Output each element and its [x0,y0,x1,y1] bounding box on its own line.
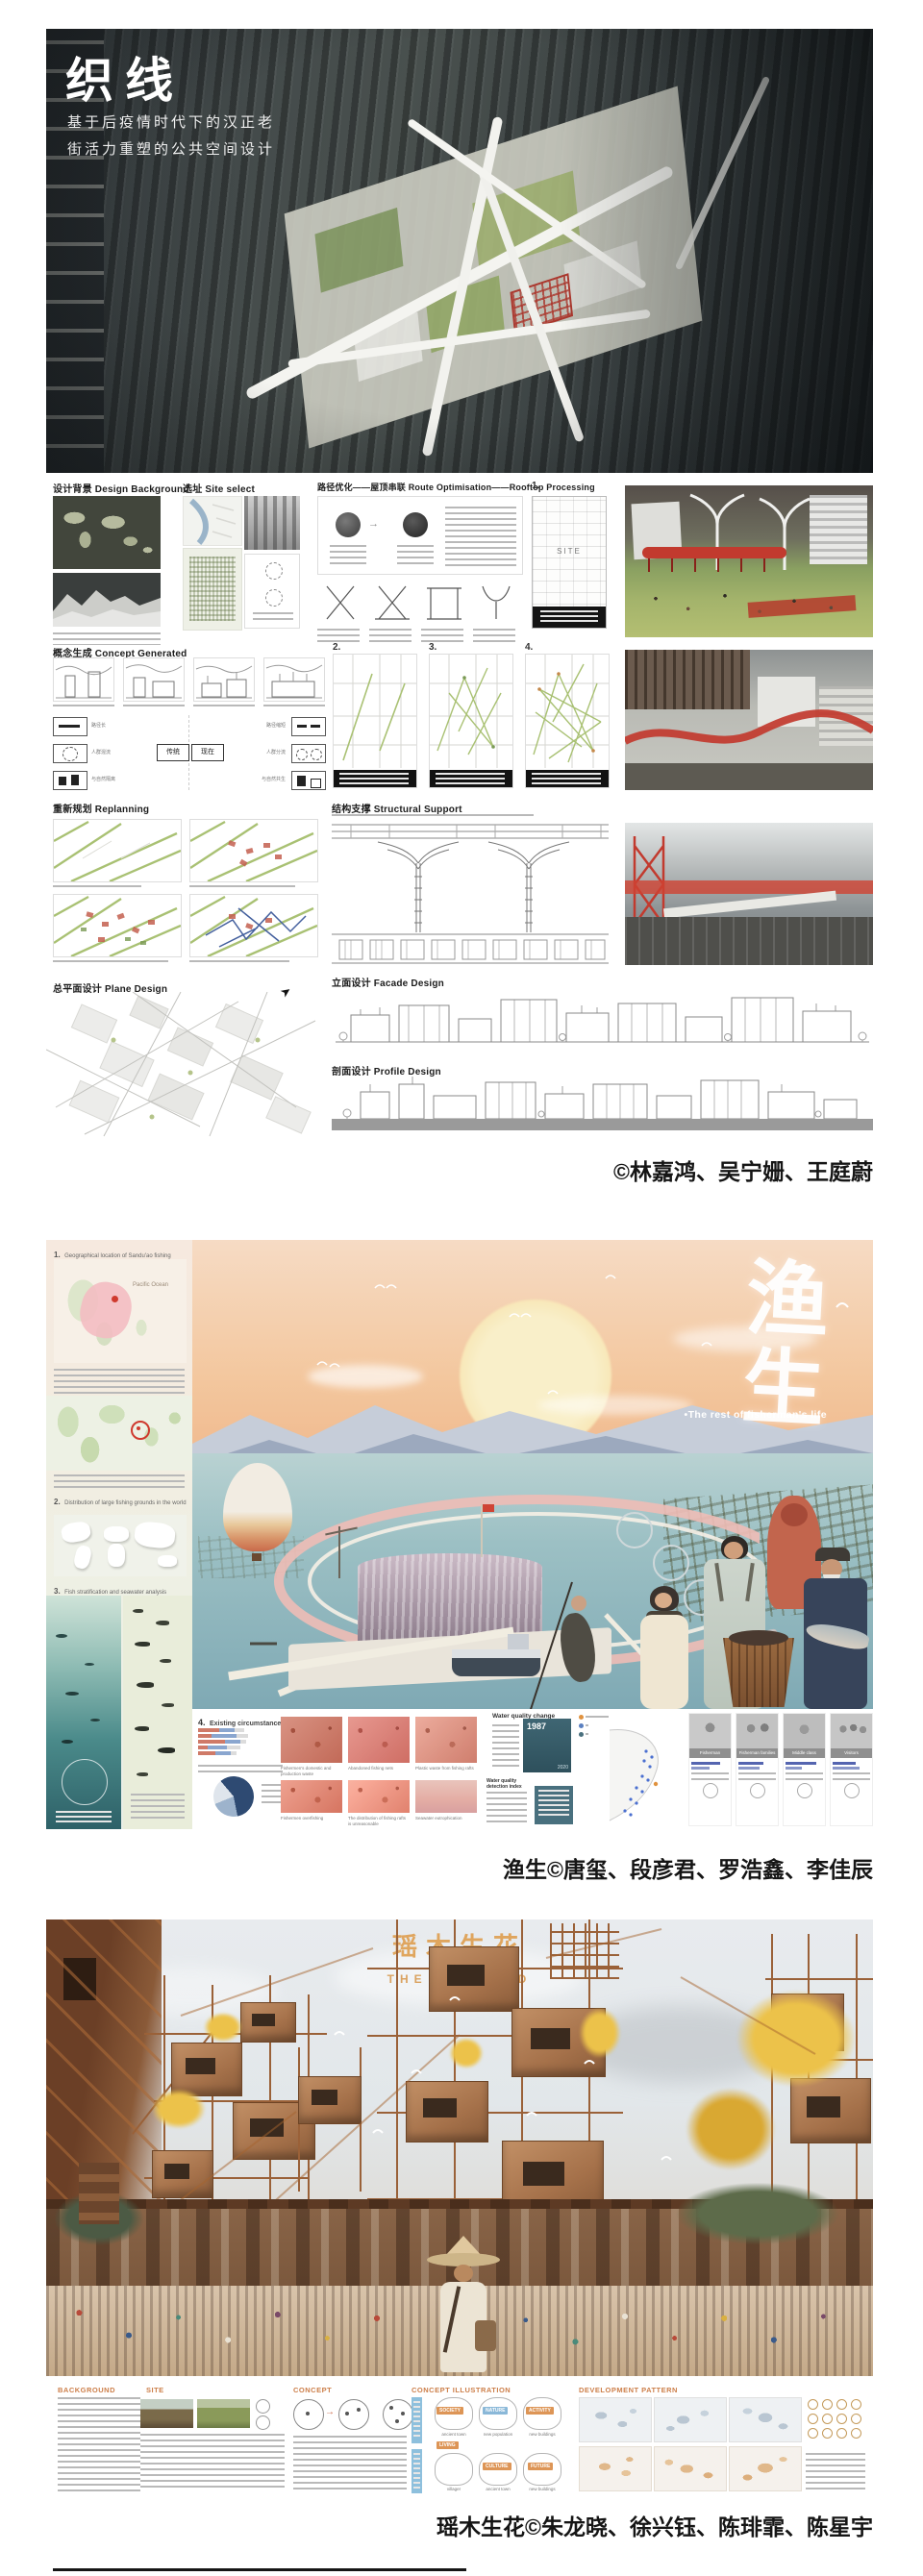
route-node-icon [403,512,428,537]
poster-title: 织线 [65,42,185,111]
concept-tag: LIVING [437,2441,459,2449]
replanning-map-3 [53,894,182,957]
panel-number-4: 4. [525,642,533,653]
issue-photo [348,1780,410,1813]
section-replanning: 重新规划 Replanning [53,801,149,815]
issue-photo [415,1780,477,1813]
conical-hat-woman [419,2236,508,2376]
background-text [58,2397,140,2491]
world-fishing-map [54,1515,187,1576]
sidebar-num: 4. [198,1718,206,1727]
tree-diagram [435,2453,473,2486]
profile-section-drawing [332,1075,873,1132]
elevation-thumb [123,657,185,702]
tree-caption: villager [435,2487,473,2492]
poster-subtitle-line1: 基于后疫情时代下的汉正老 [67,111,275,132]
year-end: 2020 [558,1765,568,1771]
tree-caption: ancient town [435,2432,473,2438]
credit-caption-newbud: 瑶木生花©朱龙晓、徐兴钰、陈琲霏、陈星宇 [437,2509,873,2541]
render-canopy-plaza [625,485,873,637]
strip-header-concept: CONCEPT [293,2386,332,2394]
credit-caption-yusheng: 渔生©唐玺、段彦君、罗浩鑫、李佳辰 [503,1851,873,1884]
blue-axis-bar [412,2449,422,2493]
pattern-map-blue [654,2397,727,2442]
bracing-diagrams [317,581,523,625]
site-photo [244,496,300,550]
bottom-rule [53,2568,466,2571]
pattern-map-orange [654,2446,727,2491]
girl-figure [633,1586,696,1709]
route-optimization-diagram: → [317,496,523,575]
site-plan-panel-1: SITE [532,496,607,629]
year-start: 1987 [527,1721,546,1731]
concept-tag: ACTIVITY [526,2407,554,2415]
site-label: SITE [533,547,606,556]
tradition-box: 传统 [157,744,189,761]
pattern-legend-circles [806,2397,865,2449]
concept-tag: FUTURE [528,2463,553,2470]
world-map-dark [53,496,161,569]
water-index-title: Water quality detection index [486,1778,536,1790]
hero-render-image: 织线 基于后疫情时代下的汉正老 街活力重塑的公共空间设计 [46,29,873,473]
panel-number-1: 1. [532,481,539,491]
tradition-vs-present-diagram: 路径长 人群混流 与自然隔离 传统 现在 路径缩短 人群分流 与自然共生 [53,715,325,790]
persona-label: Fisherman families [736,1748,778,1758]
arrow-icon: → [368,518,379,530]
poster-title-vertical: 渔生 [709,1252,842,1527]
text-line-placeholder [53,632,161,645]
issue-caption: The distribution of fishing rafts is unr… [348,1816,410,1827]
persona-card: Middle class [783,1713,826,1826]
present-box: 现在 [191,744,224,761]
site-diagram [244,554,300,629]
structural-support-drawing [332,819,609,967]
coastal-islands-map [46,1396,192,1471]
site-dot [112,1296,118,1302]
section-design-background: 设计背景 Design Background [53,481,189,495]
diver-figure [544,1582,606,1709]
stacked-bar-chart [198,1728,287,1761]
plane-axon-drawing [46,992,327,1138]
fish-species-column [123,1596,192,1829]
pagoda [79,2163,119,2224]
strip-header-development-pattern: DEVELOPMENT PATTERN [579,2386,678,2394]
render-courtyard-red-ribbon [625,650,873,790]
issue-caption: Fishermen's domestic and production wast… [281,1766,342,1777]
concept-diagram-circle [293,2399,324,2430]
persona-card: Visitors [830,1713,873,1826]
issue-photo [348,1717,410,1763]
strip-header-concept-illustration: CONCEPT ILLUSTRATION [412,2386,511,2394]
section-site-select: 选址 Site select [183,481,255,495]
site-river-map [183,496,242,546]
sidebar-section-2: 2. Distribution of large fishing grounds… [54,1492,187,1509]
strip-header-background: BACKGROUND [58,2386,115,2394]
poster-subtitle: •The rest of fisherman's life [673,1409,827,1421]
concept-plan-4 [525,654,610,788]
issue-caption: Seawater eutrophication [415,1816,477,1821]
site-figure-ground-map [183,548,242,631]
red-flag [483,1504,494,1512]
facade-elevation-drawing [332,986,873,1050]
persona-card: Fisherman [688,1713,732,1826]
sidebar-label: Distribution of large fishing grounds in… [64,1500,186,1506]
pattern-notes [806,2453,865,2491]
replanning-map-1 [53,819,182,882]
tree-caption: ancient town [479,2487,517,2492]
blue-axis-bar [412,2397,422,2443]
sidebar-num: 2. [54,1498,61,1506]
arrow-icon: → [325,2407,335,2417]
fishing-ground-map: Pacific Ocean [54,1259,187,1363]
issue-caption: Fishermen overfishing [281,1816,342,1821]
panel-number-3: 3. [429,642,437,653]
pattern-map-blue [579,2397,652,2442]
persona-label: Fisherman [689,1748,731,1758]
site-photo [140,2399,193,2428]
render-gray-walkway [625,823,873,965]
elevation-thumb [53,657,114,702]
water-index-panel [535,1786,573,1824]
terrain-section-chart [53,573,161,627]
issue-photo [281,1717,342,1763]
concept-plan-2 [333,654,417,788]
red-canopy [642,547,786,558]
coastal-distribution-map [588,1722,683,1824]
persona-label: Visitors [831,1748,872,1758]
sidebar-label: Existing circumstances [210,1721,285,1727]
flag-pole [481,1504,483,1557]
issue-caption: Plastic waste from fishing rafts [415,1766,477,1771]
site-text [140,2434,285,2489]
pattern-map-blue [729,2397,802,2442]
route-node-icon [336,512,361,537]
issue-photo [415,1717,477,1763]
persona-label: Middle class [784,1748,825,1758]
sidebar-num: 3. [54,1587,61,1596]
fish-basket [723,1626,794,1707]
concept-illustration: SOCIETY NATURE ACTIVITY ancient town new… [412,2395,575,2493]
newbud-sky: 瑶木生花 THE NEW BUD [46,1920,873,2376]
replanning-map-4 [189,894,318,957]
pattern-map-orange [579,2446,652,2491]
cycle-ring-diagram [62,1759,108,1805]
concept-diagram-circle [338,2399,369,2430]
credit-caption-zhixian: ©林嘉鸿、吴宁姗、王庭蔚 [613,1153,873,1186]
section-structural-support: 结构支撑 Structural Support [332,801,462,815]
section-route-optimization: 路径优化——屋顶串联 Route Optimisation——Rooftop P… [317,481,595,493]
concept-plan-3 [429,654,513,788]
hill-trees [661,2177,854,2250]
concept-text [293,2436,407,2489]
ship [452,1632,540,1676]
panel-number-2: 2. [333,642,340,653]
sidebar-num: 1. [54,1251,61,1259]
concept-diagram-circle [383,2399,413,2430]
tree-caption: new population [479,2432,517,2438]
crowd-dots [633,578,863,630]
red-band [625,880,873,894]
tree-caption: new buildings [523,2432,561,2438]
concept-tag: NATURE [483,2407,508,2415]
poster-subtitle-line2: 街活力重塑的公共空间设计 [67,138,275,159]
crane [338,1526,340,1578]
balloon-basket [252,1553,262,1561]
pattern-map-orange [729,2446,802,2491]
concept-tag: SOCIETY [437,2407,463,2415]
water-quality-panel: 1987 2020 [523,1719,571,1772]
page: 织线 基于后疫情时代下的汉正老 街活力重塑的公共空间设计 设计背景 Design… [0,0,923,2576]
tree-caption: new buildings [523,2487,561,2492]
underwater-analysis-panel [46,1596,121,1829]
old-fisherman-figure [798,1548,873,1709]
persona-card: Fisherman families [736,1713,779,1826]
issue-photo [281,1780,342,1813]
strip-header-site: SITE [146,2386,164,2394]
elevation-thumb [263,657,325,702]
issue-caption: Abandoned fishing nets [348,1766,410,1771]
site-photo [197,2399,250,2428]
elevation-thumb [193,657,255,702]
replanning-map-2 [189,819,318,882]
pacific-ocean-label: Pacific Ocean [133,1282,168,1290]
concept-tag: CULTURE [483,2463,511,2470]
caption-black-bar [533,607,606,628]
